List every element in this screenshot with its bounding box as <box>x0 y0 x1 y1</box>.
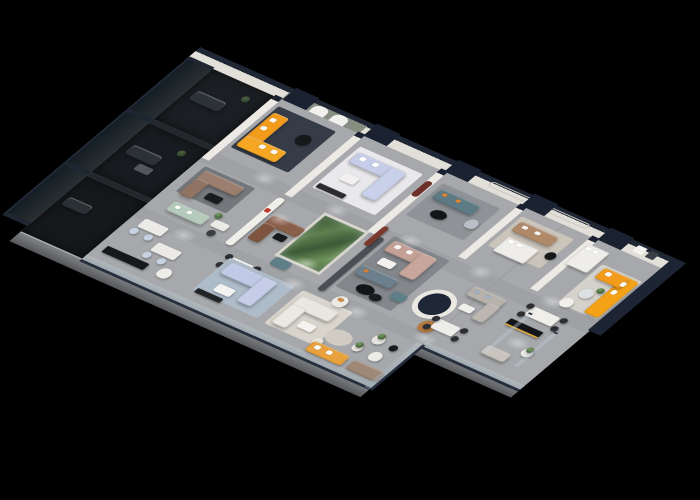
showroom-render-stage <box>0 0 700 500</box>
showroom-scene <box>0 45 700 460</box>
